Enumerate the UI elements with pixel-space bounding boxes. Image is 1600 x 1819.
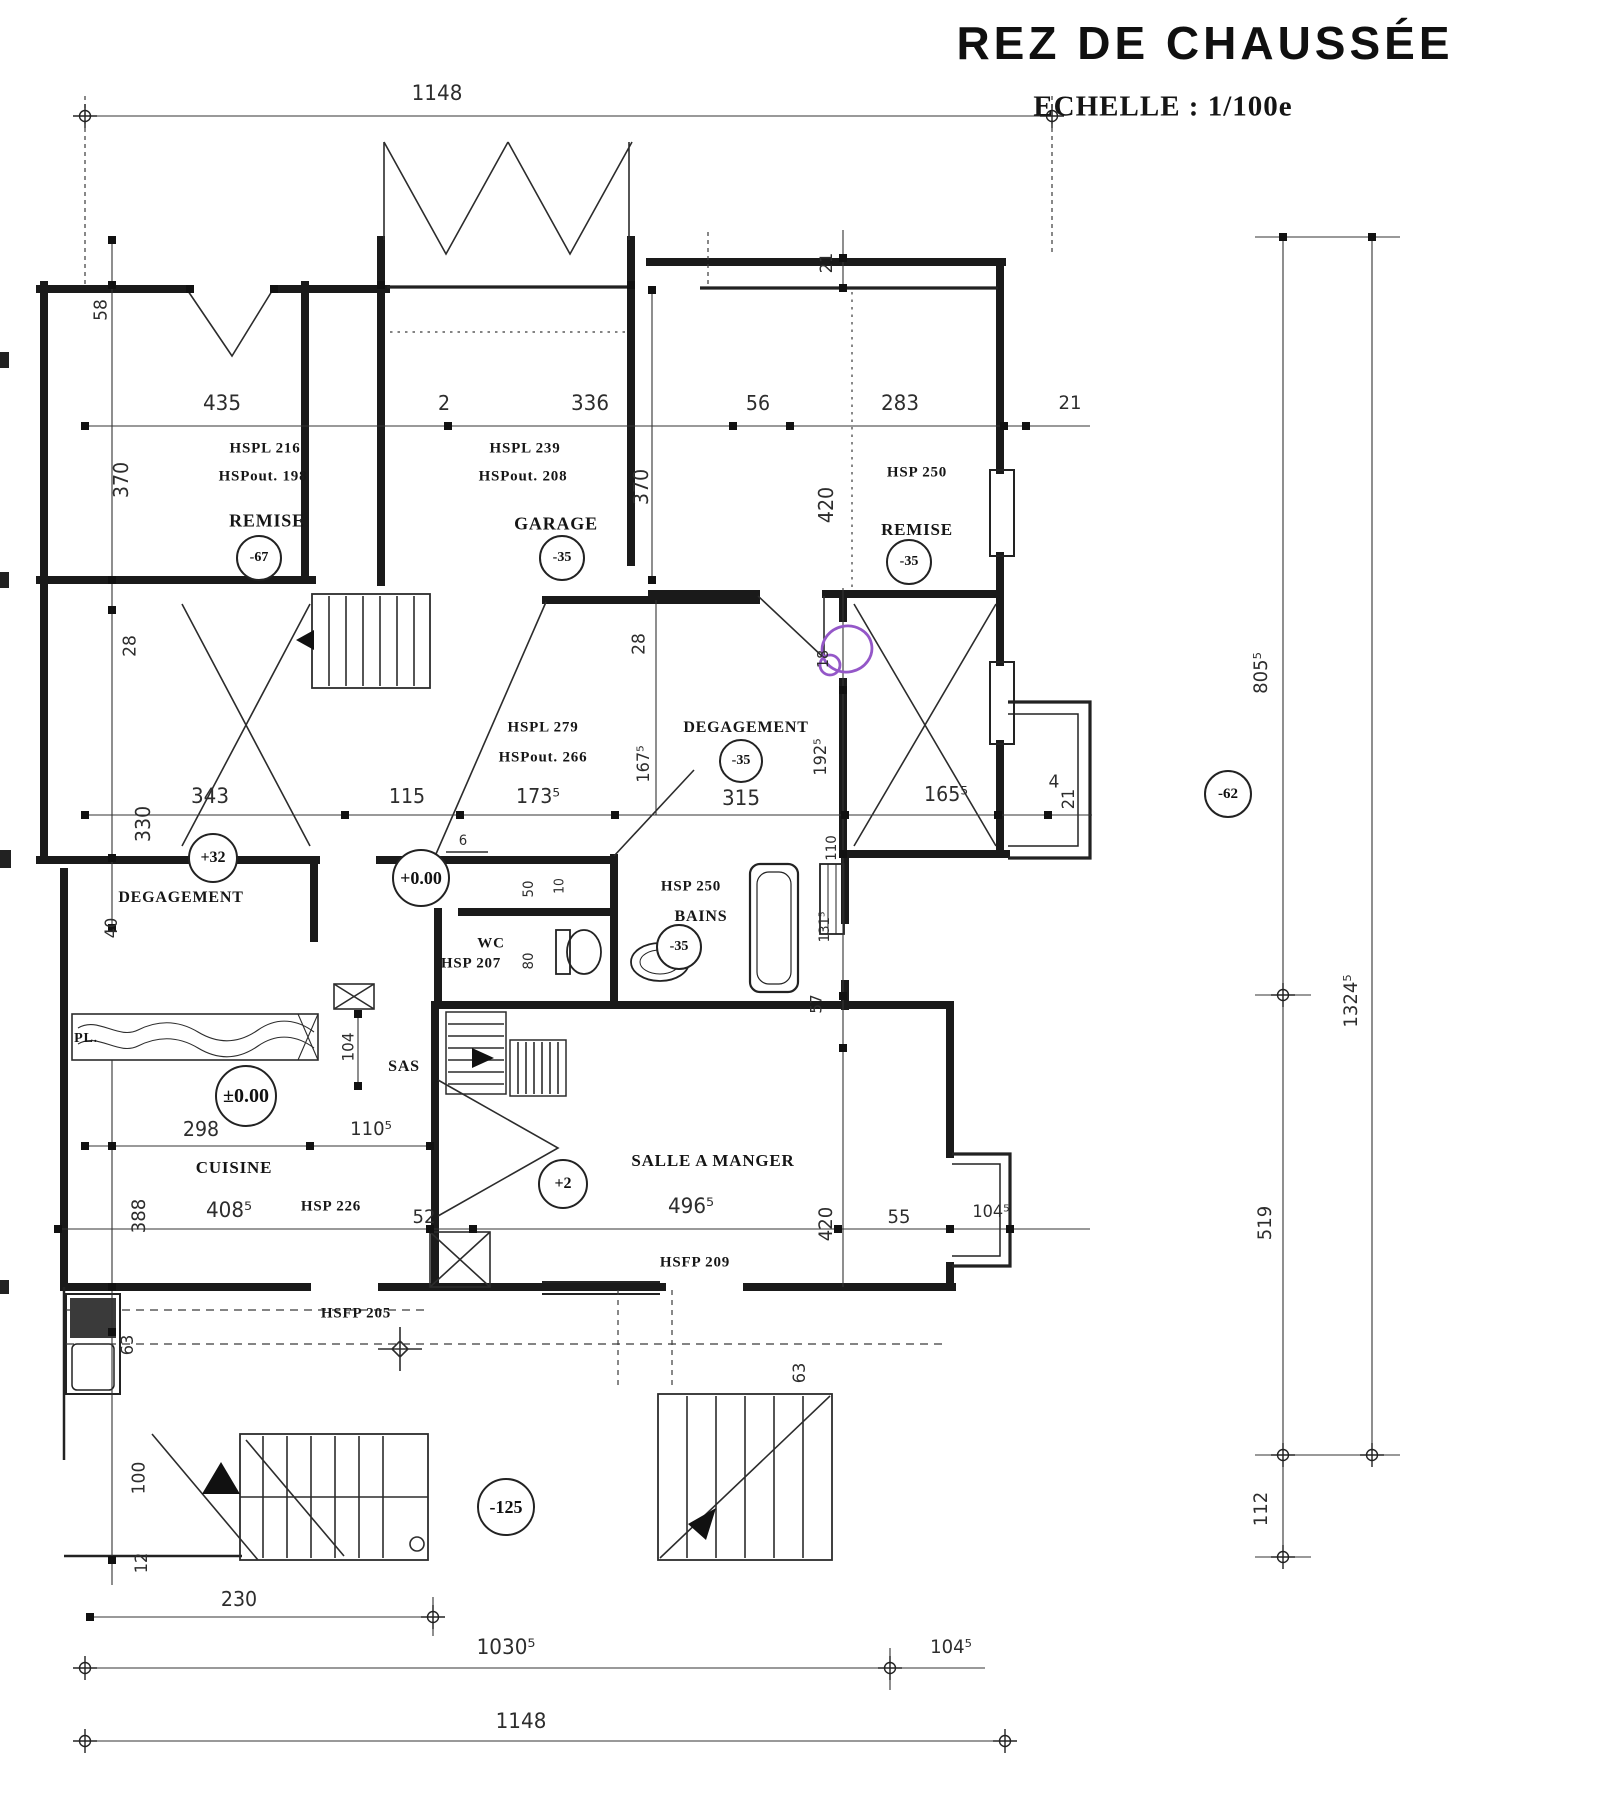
walls-medium (64, 287, 1090, 1556)
scan-artifacts (0, 352, 11, 1294)
dashed-lines (66, 96, 1052, 1390)
page-title: REZ DE CHAUSSÉE (956, 16, 1453, 70)
floor-plan-page: 1148435233656283215837028330403886310012… (0, 0, 1600, 1819)
walls-heavy (40, 240, 1006, 1287)
floor-plan-drawing (0, 0, 1600, 1819)
dimension-markers (54, 233, 1376, 1621)
annotation-circle (818, 621, 876, 676)
arrows (202, 630, 716, 1540)
scale-label: ECHELLE : 1/100e (1033, 91, 1292, 124)
crosshair-markers (73, 104, 1384, 1753)
